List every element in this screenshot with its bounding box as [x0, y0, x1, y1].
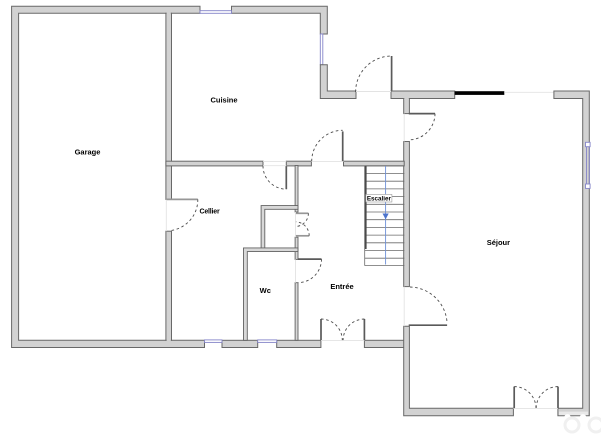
svg-text:Escalier: Escalier [367, 196, 392, 203]
svg-text:Garage: Garage [75, 147, 101, 156]
svg-text:Cellier: Cellier [200, 209, 220, 216]
svg-text:Wc: Wc [260, 286, 271, 295]
svg-text:Cuisine: Cuisine [210, 95, 237, 104]
svg-text:Entrée: Entrée [330, 282, 353, 291]
svg-text:Séjour: Séjour [487, 238, 510, 247]
